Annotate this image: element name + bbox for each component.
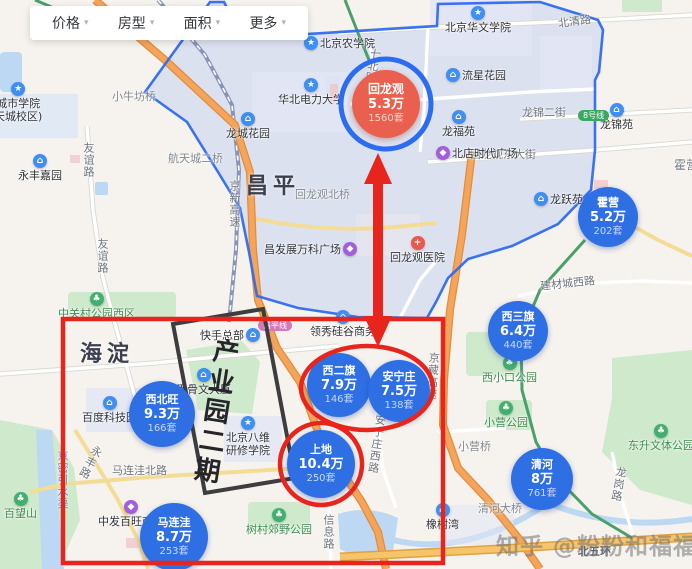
poi-xiangshuwan[interactable]: ⌂ 橡树湾 <box>426 503 459 531</box>
poi-shucun-jiaoye-gongyuan[interactable]: ♣ 树村郊野公园 <box>246 508 312 536</box>
bridge-label-xiaoying-qiao: 小营桥 <box>458 438 491 454</box>
school-icon: ★ <box>471 6 485 20</box>
poi-bawei-xueyuan[interactable]: ★ 北京八维 研修学院 <box>226 416 270 457</box>
price-bubble-huilongguan[interactable]: 回龙观 5.3万 1560套 <box>352 70 420 138</box>
metro-badge-line-8: 8号线 <box>578 110 609 121</box>
poi-xixiaokou-gongyuan[interactable]: ♣ 西小口公园 <box>482 356 537 384</box>
road-label-jingxin-gaosu: 京新高速 <box>226 180 242 228</box>
poi-longyue-yuan[interactable]: ⌂ 龙跃苑 <box>532 192 583 207</box>
hospital-cross-icon: + <box>411 236 425 250</box>
filter-room-type[interactable]: 房型 ▾ <box>118 13 155 33</box>
residential-icon: ⌂ <box>452 110 466 124</box>
school-icon: ★ <box>304 78 318 92</box>
residential-icon: ⌂ <box>241 112 255 126</box>
school-icon: ★ <box>241 416 255 430</box>
chevron-down-icon: ▾ <box>84 18 89 28</box>
poi-dongsheng-wenti-gongyuan[interactable]: ♣ 东升文体公园 <box>628 424 692 452</box>
chevron-down-icon: ▾ <box>150 18 155 28</box>
price-bubble-huoying[interactable]: 霍营 5.2万 202套 <box>578 187 638 247</box>
residential-icon: ⌂ <box>534 192 548 206</box>
water-label-jingmi-yinshuiqu: 京密引水渠 <box>54 450 70 510</box>
park-icon: ♣ <box>499 401 513 415</box>
district-label-changping: 昌平 <box>246 168 300 200</box>
poi-beijing-nongxueyuan[interactable]: ★ 北京农学院 <box>302 36 375 51</box>
price-bubble-xibeiwang[interactable]: 西北旺 9.3万 166套 <box>129 381 195 447</box>
filter-more[interactable]: 更多 ▾ <box>249 13 286 33</box>
road-label-xinxilu: 信息路 <box>320 514 336 550</box>
price-bubble-qinghe[interactable]: 清河 8万 761套 <box>511 448 573 510</box>
road-label-youyilu-1: 友谊路 <box>80 142 96 178</box>
park-icon: ♣ <box>654 424 668 438</box>
bridge-label-xiaoniufang-qiao: 小牛坊桥 <box>112 88 156 104</box>
mall-icon: ◆ <box>124 500 138 514</box>
park-icon: ♣ <box>90 292 104 306</box>
price-bubble-xierqi[interactable]: 西二旗 7.9万 146套 <box>307 353 371 417</box>
poi-zhongguancun-gongyuan-xiqu[interactable]: ♣ 中关村公园西区 <box>58 292 135 320</box>
business-icon: ⌂ <box>246 328 260 342</box>
mall-icon: ◆ <box>343 242 357 256</box>
mall-icon: ◆ <box>436 146 450 160</box>
price-bubble-anningzhuang[interactable]: 安宁庄 7.5万 138套 <box>368 360 430 422</box>
poi-huabei-dianli-daxue[interactable]: ★ 华北电力大学 <box>278 78 344 106</box>
watermark-zhihu: 知乎 @粉粉和福福 <box>496 527 692 561</box>
poi-xiaoying-gongyuan[interactable]: ♣ 小营公园 <box>484 401 528 429</box>
bridge-label-hangtiancheng-erqiao: 航天城二桥 <box>168 150 223 166</box>
price-bubble-xisanqi[interactable]: 西三旗 6.4万 440套 <box>488 301 548 361</box>
metro-badge-changping-line: 昌平线 <box>258 320 292 331</box>
bridge-label-qinghe-daqiao: 清河大桥 <box>478 500 522 516</box>
price-bubble-shangdi[interactable]: 上地 10.4万 250套 <box>287 430 355 498</box>
poi-changfazhan-wanke-guangchang[interactable]: ◆ 昌发展万科广场 <box>264 242 359 257</box>
bridge-label-huilongguan-beiqiao: 回龙观北桥 <box>295 186 350 202</box>
road-label-youyilu-2: 友谊路 <box>94 238 110 274</box>
business-icon: ⌂ <box>336 310 350 324</box>
map-canvas[interactable]: 昌平 海淀 北清路 友谊路 友谊路 回龙观东大街 龙锦二街 建材城西路 马连洼北… <box>0 0 692 569</box>
chevron-down-icon: ▾ <box>281 18 286 28</box>
chevron-down-icon: ▾ <box>216 18 221 28</box>
residential-icon: ⌂ <box>610 103 624 117</box>
school-icon: ★ <box>11 82 25 96</box>
price-bubble-malianwa[interactable]: 马连洼 8.7万 253套 <box>140 503 208 569</box>
filter-price[interactable]: 价格 ▾ <box>52 13 89 33</box>
poi-longcheng-huayuan[interactable]: ⌂ 龙城花园 <box>226 112 270 140</box>
poi-beidian-shidai-guangchang[interactable]: ◆ 北店时代广场 <box>434 146 518 161</box>
poi-beijing-huawen-xueyuan[interactable]: ★ 北京华文学院 <box>445 6 511 34</box>
poi-yongfeng-jiayuan[interactable]: ⌂ 永丰嘉园 <box>18 154 62 182</box>
business-icon: ⌂ <box>103 396 117 410</box>
area-label-huoying: 霍营 <box>674 156 692 173</box>
poi-chengshi-xueyuan[interactable]: ★ 城市学院 天城校区) <box>0 82 42 123</box>
residential-icon: ⌂ <box>436 503 450 517</box>
poi-lingxiu-guigu[interactable]: ⌂ 领秀硅谷商务 <box>310 310 376 338</box>
road-label-malianwa-beilu: 马连洼北路 <box>112 462 167 478</box>
filter-bar: 价格 ▾ 房型 ▾ 面积 ▾ 更多 ▾ <box>30 6 308 40</box>
poi-liuxing-huayuan[interactable]: ⌂ 流星花园 <box>444 68 506 83</box>
park-icon: ♣ <box>14 492 28 506</box>
district-label-haidian: 海淀 <box>80 336 134 368</box>
road-label-longjin-erjie: 龙锦二街 <box>522 104 566 120</box>
poi-longfu-yuan[interactable]: ⌂ 龙福苑 <box>442 110 475 138</box>
residential-icon: ⌂ <box>33 154 47 168</box>
poi-huilongguan-yiyuan[interactable]: + 回龙观医院 <box>390 236 445 264</box>
poi-baiwangshan[interactable]: ♣ 百望山 <box>4 492 37 520</box>
park-icon: ♣ <box>272 508 286 522</box>
filter-area[interactable]: 面积 ▾ <box>184 13 221 33</box>
residential-icon: ⌂ <box>446 68 460 82</box>
